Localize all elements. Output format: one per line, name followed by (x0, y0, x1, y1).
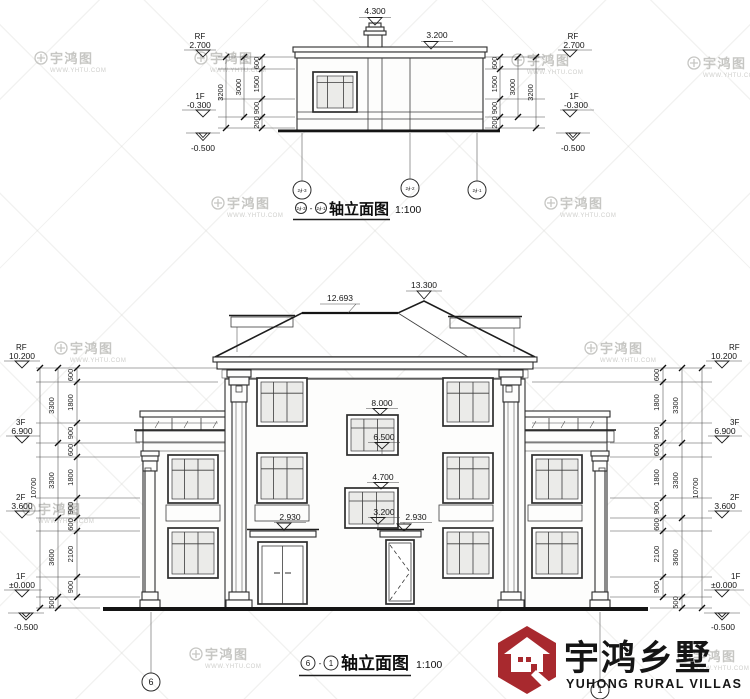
level-value: -0.500 (561, 143, 585, 153)
level-marker-ridge: 12.693 (320, 293, 360, 313)
axis-label: 2∮-3 (297, 188, 306, 194)
dim-text: 1800 (66, 469, 75, 486)
dim-text: 900 (490, 102, 499, 115)
svg-text:宇鸿图: 宇鸿图 (210, 51, 254, 66)
level-value: 3.200 (373, 507, 395, 517)
level-value: 3.200 (426, 30, 448, 40)
window-main-right-1f (443, 528, 493, 578)
dim-text: 500 (671, 596, 680, 609)
title-scale: 1:100 (416, 659, 442, 671)
dim-text: 200 (252, 116, 261, 129)
roof-deck-edges (229, 316, 522, 353)
level-value: 2.700 (189, 40, 211, 50)
svg-text:WWW.YHTU.COM: WWW.YHTU.COM (70, 358, 126, 364)
axis-label: 6 (148, 677, 153, 687)
dim-text: 3000 (234, 79, 243, 96)
dim-text: 600 (66, 369, 75, 382)
level-marker-rf-main-left: RF 10.200 (4, 343, 40, 368)
dim-text: 900 (66, 427, 75, 440)
dim-text: 600 (652, 444, 661, 457)
brand-logo: 宇鸿乡墅 YUHONG RURAL VILLAS (498, 626, 742, 694)
dim-stack-main-left: 600 1800 900 600 1800 900 600 2100 900 3… (29, 365, 80, 611)
dim-text: 10700 (691, 478, 700, 499)
watermark: 宇鸿图WWW.YHTU.COM (35, 51, 106, 74)
dim-text: 1500 (252, 76, 261, 93)
dim-text: 600 (252, 57, 261, 70)
entry-door-center (386, 540, 414, 604)
window-main-left-3f (257, 378, 307, 426)
window-main-right-3f (443, 378, 493, 426)
canopy-center (377, 530, 424, 538)
eave-cornice-lower (217, 362, 533, 369)
watermark: 宇鸿图WWW.YHTU.COM (190, 647, 261, 670)
axis-label: 2∮-1 (472, 188, 481, 194)
dim-text: 1800 (652, 469, 661, 486)
level-value: ±0.000 (9, 580, 35, 590)
logo-name-cn: 宇鸿乡墅 (564, 639, 712, 678)
watermark: 宇鸿图WWW.YHTU.COM (55, 341, 126, 364)
axis-bubble-6: 6 (142, 612, 160, 691)
watermark: 宇鸿图WWW.YHTU.COM (512, 53, 583, 76)
dim-text: 600 (652, 518, 661, 531)
watermark: 宇鸿图WWW.YHTU.COM (545, 196, 616, 219)
dim-text: 3300 (671, 397, 680, 414)
level-value: -0.300 (564, 100, 588, 110)
level-value: 2.930 (279, 512, 301, 522)
dim-text: 3000 (508, 79, 517, 96)
dim-text: 3300 (671, 472, 680, 489)
watermark-url: WWW.YHTU.COM (50, 68, 106, 74)
dim-text: 3200 (216, 84, 225, 101)
watermark: 宇鸿图WWW.YHTU.COM (585, 341, 656, 364)
watermark-text: 宇鸿图 (50, 51, 94, 66)
dim-text: 600 (490, 57, 499, 70)
dim-text: 900 (66, 581, 75, 594)
window-wing-left-1f (168, 528, 218, 578)
level-value: 10.200 (711, 351, 737, 361)
dim-text: 200 (490, 116, 499, 129)
dim-text: 2100 (66, 546, 75, 563)
dim-text: 3600 (47, 549, 56, 566)
level-marker-ground-main-left: -0.500 (8, 613, 44, 632)
drawing-sheet: 宇鸿图WWW.YHTU.COM 宇鸿图WWW.YHTU.COM 宇鸿图WWW.Y… (0, 0, 750, 699)
double-door-left (258, 542, 307, 604)
level-value: 10.200 (9, 351, 35, 361)
level-value: 2.700 (563, 40, 585, 50)
level-value: ±0.000 (711, 580, 737, 590)
svg-text:WWW.YHTU.COM: WWW.YHTU.COM (227, 213, 283, 219)
level-marker-rf-main-right: RF 10.200 (706, 343, 742, 368)
title-scale: 1:100 (395, 204, 421, 216)
window-main-right-2f (443, 453, 493, 503)
level-value: 6.900 (714, 426, 736, 436)
penthouse-window (313, 72, 357, 112)
level-value: 4.300 (364, 6, 386, 16)
level-value: 6.900 (11, 426, 33, 436)
title-text: 轴立面图 (329, 200, 389, 218)
main-drawing-title: 6 - 1 轴立面图 1:100 (299, 653, 442, 676)
svg-text:宇鸿图: 宇鸿图 (703, 56, 747, 71)
level-value: -0.500 (191, 143, 215, 153)
dim-text: 900 (652, 502, 661, 515)
level-value: 3.600 (11, 501, 33, 511)
svg-text:宇鸿图: 宇鸿图 (70, 341, 114, 356)
title-separator: - (319, 658, 322, 668)
level-marker-roof-peak: 13.300 (406, 280, 442, 299)
top-elevation-drawing: 4.300 3.200 600 1500 900 200 3000 3200 6 (182, 6, 594, 220)
level-value: 3.600 (714, 501, 736, 511)
level-value: -0.300 (187, 100, 211, 110)
title-axis-from: 6 (306, 659, 311, 668)
dim-text: 3600 (671, 549, 680, 566)
dim-text: 1500 (490, 76, 499, 93)
dim-text: 10700 (29, 478, 38, 499)
window-wing-right-1f (532, 528, 582, 578)
dim-text: 500 (47, 596, 56, 609)
chimney (364, 23, 386, 47)
dim-text: 3300 (47, 397, 56, 414)
dim-text: 900 (652, 581, 661, 594)
ground-line (103, 607, 648, 611)
svg-text:WWW.YHTU.COM: WWW.YHTU.COM (560, 213, 616, 219)
dim-text: 900 (652, 427, 661, 440)
hip-roof (215, 301, 535, 357)
dim-text: 900 (252, 102, 261, 115)
level-marker-chimney-top: 4.300 (359, 6, 391, 25)
level-marker-ground-main-right: -0.500 (704, 613, 740, 632)
axis-bubbles-top: 2∮-3 2∮-2 2∮-1 (293, 133, 486, 199)
level-value: 12.693 (327, 293, 353, 303)
dim-text: 600 (66, 444, 75, 457)
top-drawing-title: 2∮-3 - 2∮-1 轴立面图 1:100 (293, 200, 421, 220)
level-marker-1f-left: 1F -0.300 (182, 92, 216, 117)
level-marker-2f-main-right: 2F 3.600 (708, 493, 742, 518)
watermark: 宇鸿图WWW.YHTU.COM (212, 196, 283, 219)
svg-text:WWW.YHTU.COM: WWW.YHTU.COM (205, 664, 261, 670)
dim-text: 3300 (47, 472, 56, 489)
level-value: 8.000 (371, 398, 393, 408)
eave-cornice (213, 357, 537, 362)
title-axis-from: 2∮-3 (296, 206, 305, 212)
svg-text:WWW.YHTU.COM: WWW.YHTU.COM (600, 358, 656, 364)
level-value: 4.700 (372, 472, 394, 482)
dentil-band (222, 370, 528, 378)
level-marker-3f-main-left: 3F 6.900 (6, 418, 40, 443)
window-wing-right-2f (532, 455, 582, 503)
penthouse-building (278, 23, 500, 132)
title-text: 轴立面图 (341, 653, 409, 673)
level-value: 13.300 (411, 280, 437, 290)
dim-stack-main-right: 600 1800 900 600 1800 900 600 2100 900 3… (652, 365, 705, 611)
roof-cornice (295, 52, 485, 58)
watermark: 宇鸿图WWW.YHTU.COM (688, 56, 750, 79)
title-separator: - (310, 203, 313, 213)
level-value: -0.500 (14, 622, 38, 632)
canopy-left (247, 530, 319, 538)
svg-text:宇鸿图: 宇鸿图 (600, 341, 644, 356)
dim-text: 2100 (652, 546, 661, 563)
dim-text: 600 (652, 369, 661, 382)
level-value: -0.500 (711, 622, 735, 632)
level-marker-3f-main-right: 3F 6.900 (708, 418, 742, 443)
level-marker-ground-right: -0.500 (556, 133, 590, 153)
level-value: 2.930 (405, 512, 427, 522)
level-marker-roof: 3.200 (421, 30, 453, 49)
dim-text: 1800 (66, 394, 75, 411)
watermark: 宇鸿图WWW.YHTU.COM (23, 502, 94, 525)
dim-text: 1800 (652, 394, 661, 411)
level-marker-1f-main-left: 1F ±0.000 (4, 572, 42, 597)
level-marker-ground-left: -0.500 (186, 133, 220, 153)
title-axis-to: 1 (329, 659, 334, 668)
level-value: 6.500 (373, 432, 395, 442)
ground-line (278, 130, 500, 133)
roof-coping (293, 47, 487, 52)
svg-text:宇鸿图: 宇鸿图 (527, 53, 571, 68)
title-axis-to: 2∮-1 (316, 206, 325, 212)
level-marker-1f-main-right: 1F ±0.000 (704, 572, 744, 597)
svg-text:WWW.YHTU.COM: WWW.YHTU.COM (703, 73, 750, 79)
level-marker-1f-right: 1F -0.300 (560, 92, 594, 117)
logo-name-en: YUHONG RURAL VILLAS (566, 677, 742, 691)
dim-text: 600 (66, 518, 75, 531)
window-main-left-2f (257, 453, 307, 503)
dim-text: 3200 (526, 84, 535, 101)
window-wing-left-2f (168, 455, 218, 503)
axis-label: 2∮-2 (405, 186, 414, 192)
dim-text: 900 (66, 502, 75, 515)
svg-text:WWW.YHTU.COM: WWW.YHTU.COM (527, 70, 583, 76)
svg-text:宇鸿图: 宇鸿图 (227, 196, 271, 211)
svg-text:宇鸿图: 宇鸿图 (560, 196, 604, 211)
svg-text:宇鸿图: 宇鸿图 (205, 647, 249, 662)
